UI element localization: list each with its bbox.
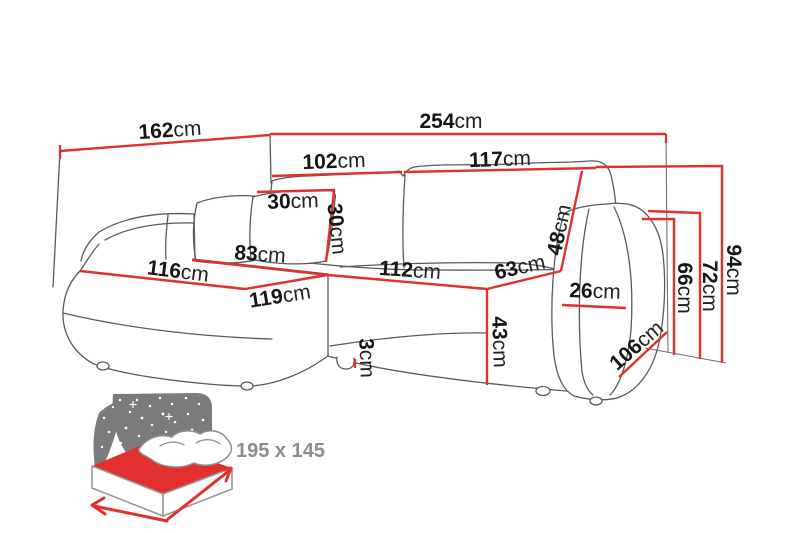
dim-label-66: 66cm [673, 262, 696, 313]
sofa-foot [536, 387, 550, 396]
sofa-foot [241, 382, 253, 390]
bed-size-label: 195 x 145 [236, 440, 325, 462]
dim-label-102: 102cm [302, 148, 366, 173]
sofa-foot [590, 397, 602, 405]
sofa-dimension-diagram: 162cm 254cm 102cm 117cm 30cm 30cm 83cm 1… [0, 0, 800, 533]
dim-label-94: 94cm [722, 244, 745, 295]
dim-label-119: 119cm [247, 280, 312, 312]
sofa-foot [97, 362, 109, 370]
dim-label-112: 112cm [378, 256, 441, 283]
sleep-function-icon: 195 x 145 [92, 393, 325, 521]
dim-label-162: 162cm [138, 116, 202, 143]
dim-label-254: 254cm [419, 110, 482, 133]
diagram-drawing: 162cm 254cm 102cm 117cm 30cm 30cm 83cm 1… [0, 0, 800, 533]
sofa-foot [337, 357, 354, 369]
dim-label-26: 26cm [569, 279, 621, 304]
dim-label-43: 43cm [488, 316, 513, 368]
dim-label-3: 3cm [355, 338, 379, 378]
fold-out-bed-icon [92, 431, 232, 521]
dim-label-72: 72cm [698, 260, 721, 311]
dim-label-30-width: 30cm [267, 189, 319, 214]
dim-label-83: 83cm [234, 241, 287, 268]
dim-label-117: 117cm [469, 146, 532, 171]
